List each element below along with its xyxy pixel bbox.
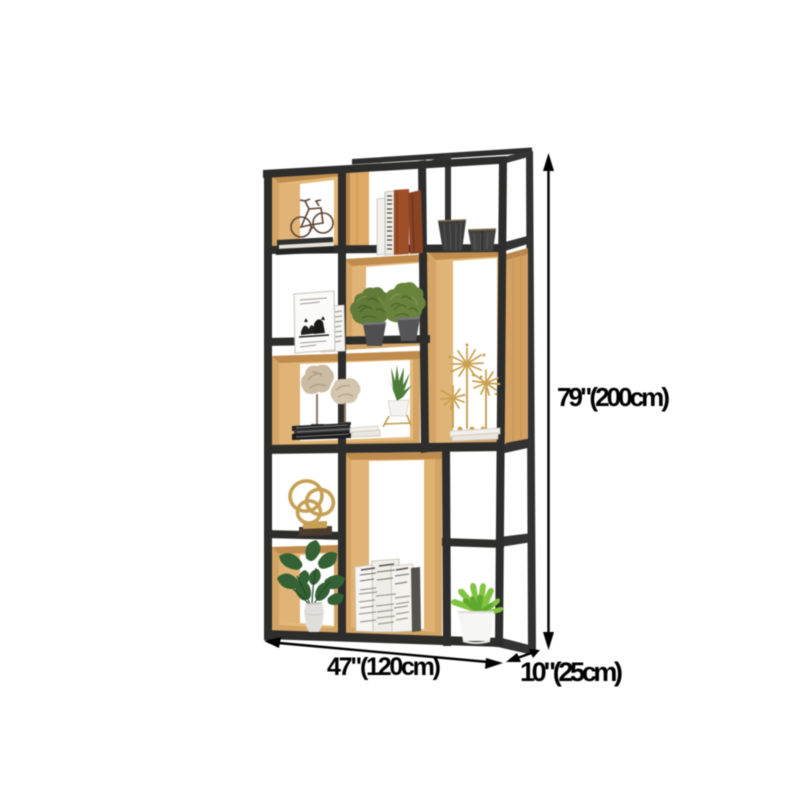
svg-text:10"(25cm): 10"(25cm) xyxy=(520,657,623,687)
svg-text:79"(200cm): 79"(200cm) xyxy=(557,382,670,412)
svg-text:47"(120cm): 47"(120cm) xyxy=(327,653,441,681)
